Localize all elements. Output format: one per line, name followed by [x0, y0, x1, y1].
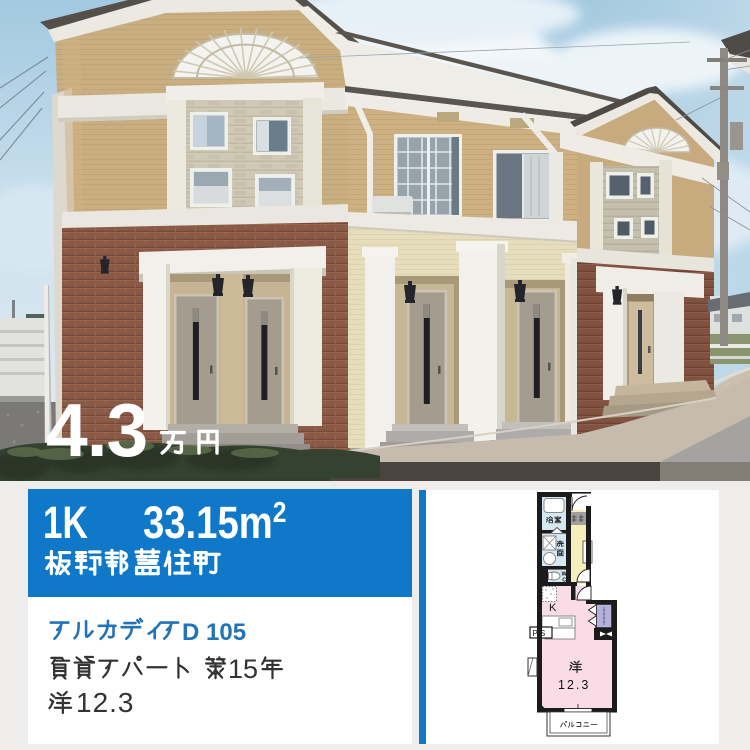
svg-text:D 105: D 105 [182, 619, 246, 646]
svg-text:12.3: 12.3 [76, 687, 135, 718]
svg-text:15: 15 [228, 654, 258, 684]
svg-text:4.3: 4.3 [46, 388, 147, 472]
